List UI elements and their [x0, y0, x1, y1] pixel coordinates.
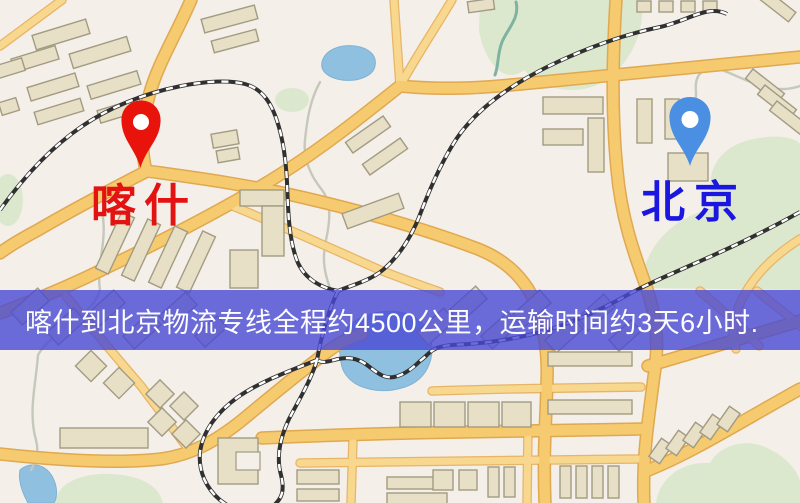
origin-city-label: 喀什	[91, 183, 197, 228]
route-info-banner: 喀什到北京物流专线全程约4500公里，运输时间约3天6小时.	[0, 290, 800, 350]
map-screenshot: 喀什 北京 喀什到北京物流专线全程约4500公里，运输时间约3天6小时.	[0, 0, 800, 503]
route-info-text: 喀什到北京物流专线全程约4500公里，运输时间约3天6小时.	[25, 301, 759, 340]
map-pin-icon	[121, 101, 160, 169]
destination-city-label: 北京	[641, 181, 747, 225]
origin-pin	[121, 101, 160, 169]
map-canvas	[0, 0, 800, 503]
